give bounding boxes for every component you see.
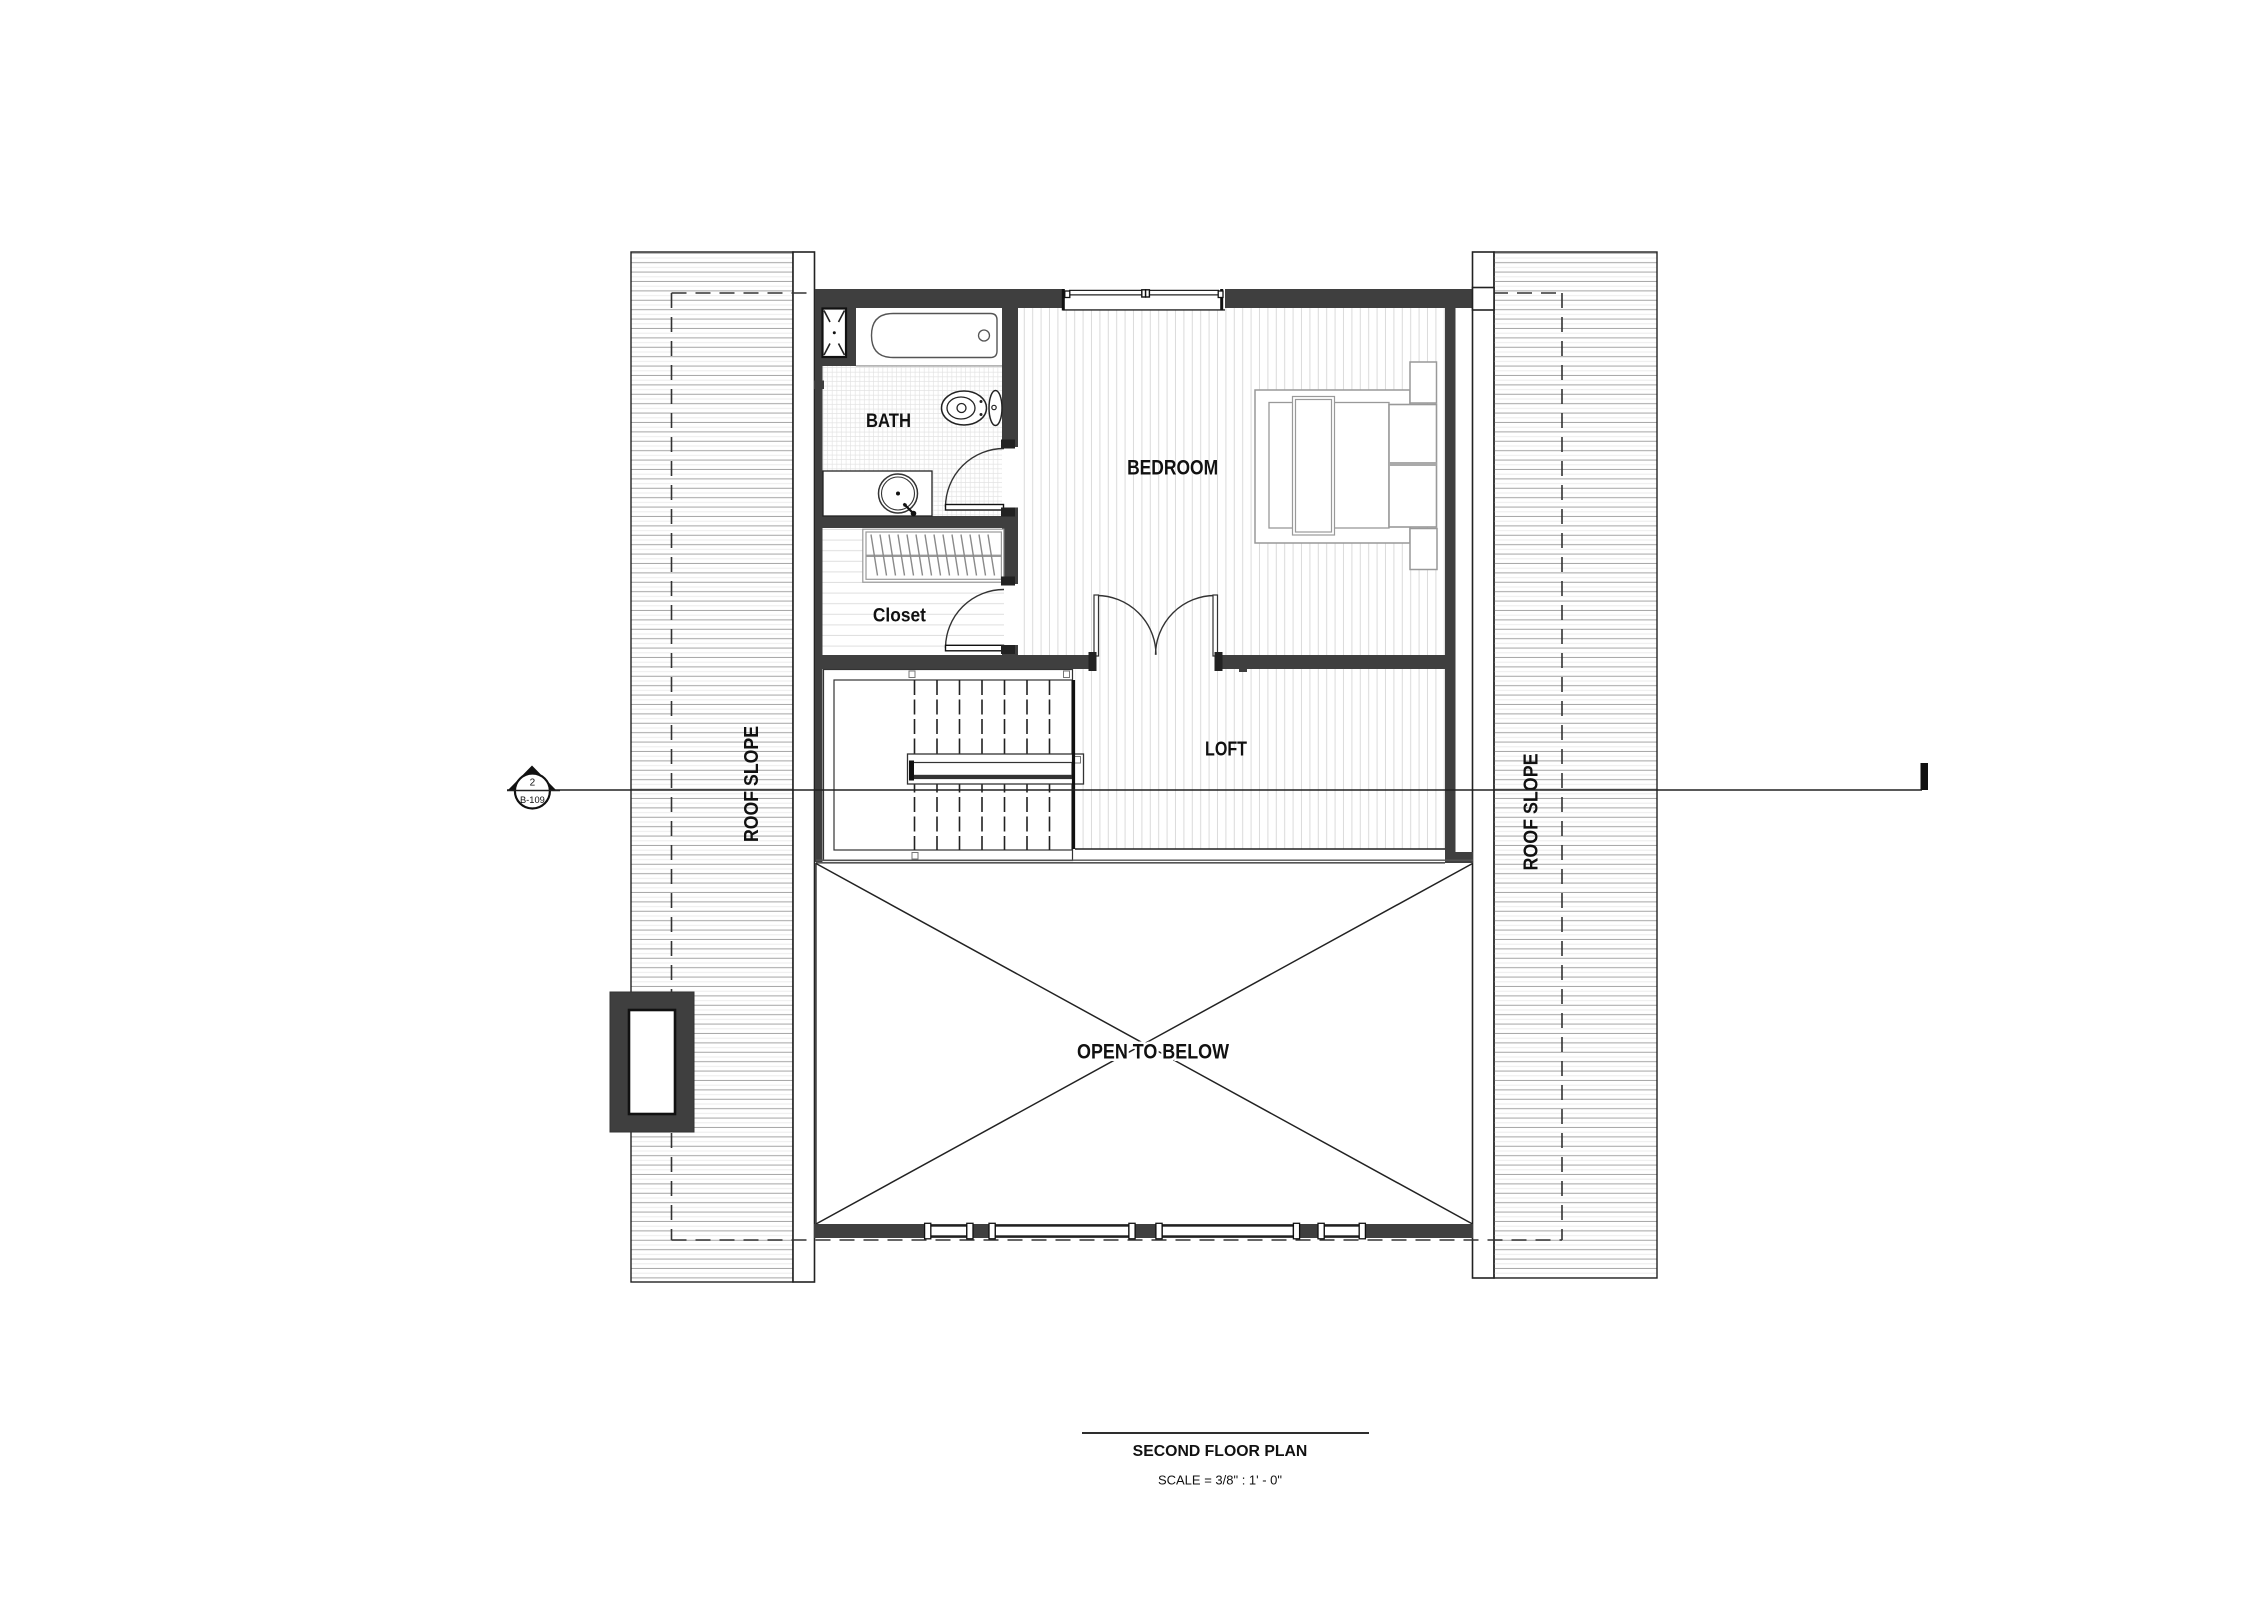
svg-text:ROOF SLOPE: ROOF SLOPE: [741, 726, 763, 842]
svg-text:SCALE = 3/8" : 1' - 0": SCALE = 3/8" : 1' - 0": [1158, 1473, 1282, 1488]
svg-text:LOFT: LOFT: [1205, 738, 1247, 761]
svg-text:B-109: B-109: [520, 795, 545, 805]
svg-text:BEDROOM: BEDROOM: [1127, 457, 1218, 480]
svg-text:ROOF SLOPE: ROOF SLOPE: [1521, 754, 1543, 871]
svg-text:Closet: Closet: [873, 605, 926, 627]
svg-text:OPEN TO BELOW: OPEN TO BELOW: [1077, 1040, 1229, 1063]
svg-text:SECOND FLOOR PLAN: SECOND FLOOR PLAN: [1133, 1443, 1308, 1460]
svg-text:BATH: BATH: [866, 410, 911, 432]
svg-text:2: 2: [530, 778, 536, 789]
